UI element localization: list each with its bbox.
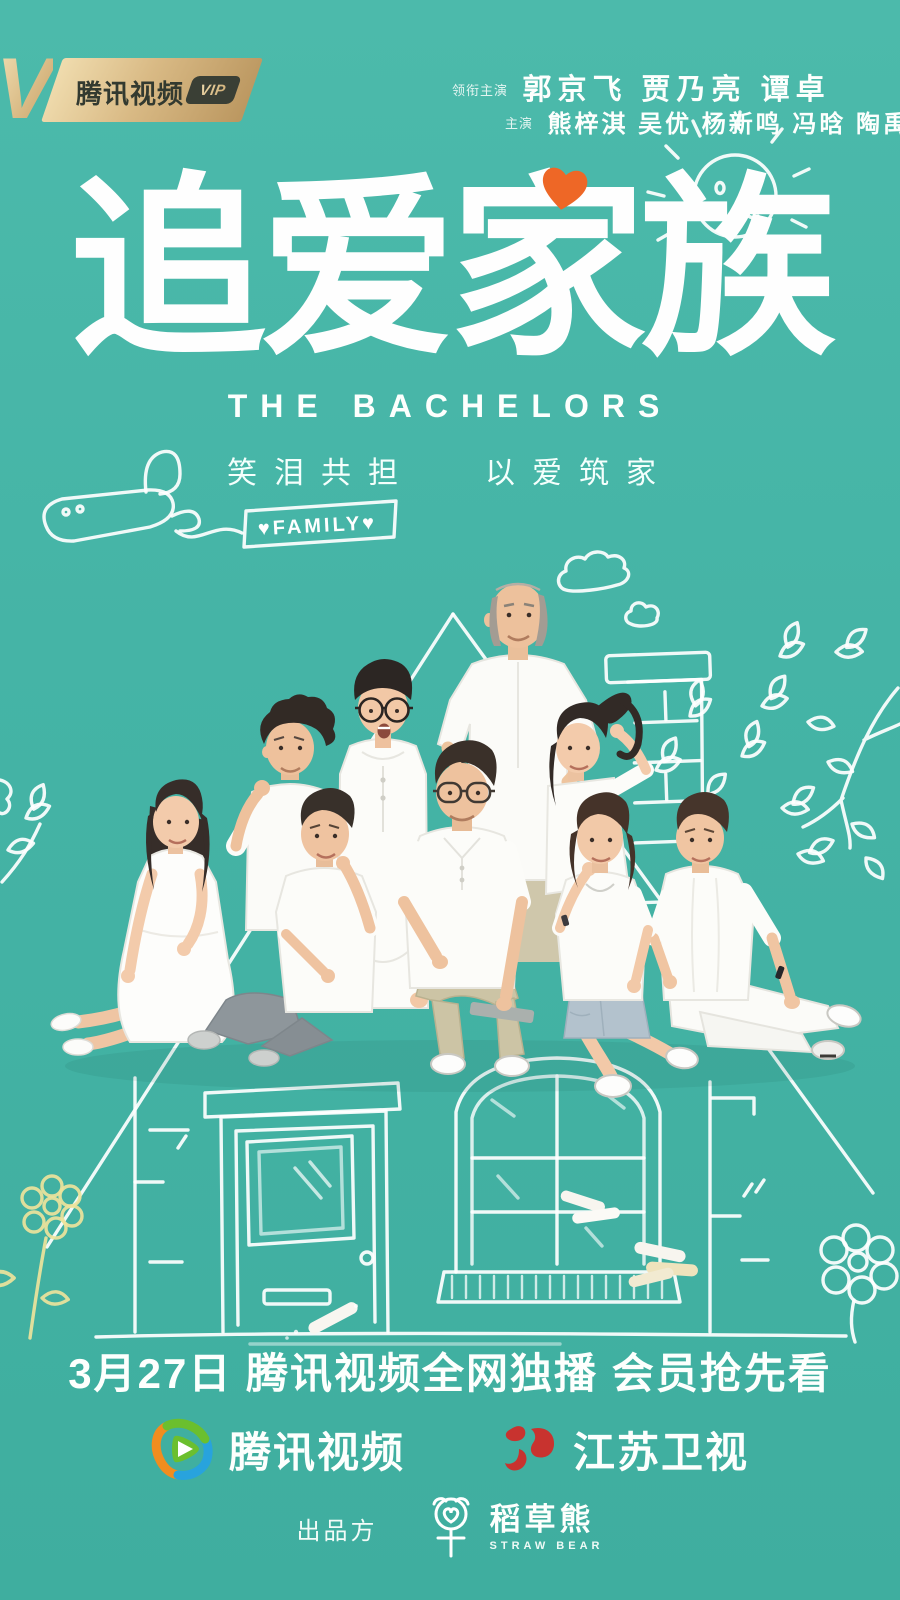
person-ponytail-woman bbox=[546, 693, 646, 894]
person-grandfather bbox=[438, 584, 598, 962]
heart-icon bbox=[538, 164, 590, 214]
lead-cast-label: 领衔主演 bbox=[452, 83, 508, 98]
person-curly-man bbox=[236, 694, 338, 930]
movie-poster: ♥FAMILY♥ bbox=[0, 0, 900, 1600]
english-title: THE BACHELORS bbox=[0, 388, 900, 425]
lead-cast-credit: 领衔主演 郭京飞 贾乃亮 谭卓 bbox=[452, 66, 831, 108]
jiangsu-tv-icon bbox=[497, 1419, 559, 1479]
family-banner: ♥FAMILY♥ bbox=[244, 501, 396, 547]
house-roof-doodle bbox=[47, 614, 873, 1247]
producer-row: 出品方 稻草熊 STRAW BEAR bbox=[0, 1492, 900, 1564]
tencent-play-icon bbox=[151, 1418, 215, 1480]
tree-doodle bbox=[649, 617, 900, 882]
straw-bear-name-zh: 稻草熊 bbox=[490, 1504, 604, 1535]
person-young-man-left bbox=[188, 788, 376, 1066]
vip-chip: VIP bbox=[184, 76, 242, 104]
jiangsu-tv-name: 江苏卫视 bbox=[573, 1419, 749, 1480]
door-doodle bbox=[205, 1083, 400, 1332]
release-info: 3月27日 腾讯视频全网独播 会员抢先看 bbox=[0, 1340, 900, 1401]
cloud-doodle bbox=[558, 552, 658, 626]
chalk-pieces bbox=[285, 1189, 698, 1340]
flower-doodle-right bbox=[821, 1225, 897, 1342]
straw-bear-logo: 稻草熊 STRAW BEAR bbox=[424, 1492, 604, 1564]
house-wall-doodle bbox=[96, 1078, 846, 1344]
tagline-left: 笑泪共担 bbox=[227, 457, 415, 490]
tencent-video-logo: 腾讯视频 bbox=[151, 1418, 405, 1480]
window-doodle bbox=[438, 1058, 680, 1302]
vip-brand-text: 腾讯视频 bbox=[76, 74, 184, 111]
person-boy bbox=[338, 659, 428, 1008]
plant-doodle-left bbox=[0, 779, 57, 882]
supporting-cast-names: 熊梓淇 吴优 杨新鸣 冯晗 陶禹佑 杨雨潼 bbox=[547, 111, 900, 138]
vip-v-glyph: V bbox=[0, 46, 53, 132]
supporting-cast-credit: 主演 熊梓淇 吴优 杨新鸣 冯晗 陶禹佑 杨雨潼 bbox=[505, 104, 900, 139]
vip-chip-text: VIP bbox=[199, 82, 228, 99]
person-right-man bbox=[654, 792, 863, 1059]
tencent-video-name: 腾讯视频 bbox=[229, 1419, 405, 1480]
jiangsu-tv-logo: 江苏卫视 bbox=[497, 1419, 749, 1480]
straw-bear-name-en: STRAW BEAR bbox=[490, 1541, 604, 1552]
tagline: 笑泪共担以爱筑家 bbox=[0, 448, 900, 492]
tencent-vip-badge: V 腾讯视频 VIP bbox=[0, 52, 270, 132]
person-right-woman bbox=[556, 792, 699, 1097]
tagline-right: 以爱筑家 bbox=[485, 457, 673, 490]
flower-doodle-left bbox=[0, 1176, 82, 1338]
producer-label: 出品方 bbox=[297, 1511, 378, 1546]
network-logos: 腾讯视频 江苏卫视 bbox=[0, 1418, 900, 1480]
person-center-man bbox=[404, 740, 535, 1076]
person-left-woman bbox=[50, 779, 234, 1055]
main-title: 追爱家族 bbox=[0, 148, 900, 393]
family-banner-text: ♥FAMILY♥ bbox=[257, 512, 377, 540]
supporting-cast-label: 主演 bbox=[505, 116, 533, 131]
straw-bear-icon bbox=[424, 1492, 478, 1564]
chimney-doodle bbox=[606, 652, 719, 903]
lead-cast-names: 郭京飞 贾乃亮 谭卓 bbox=[522, 74, 830, 106]
